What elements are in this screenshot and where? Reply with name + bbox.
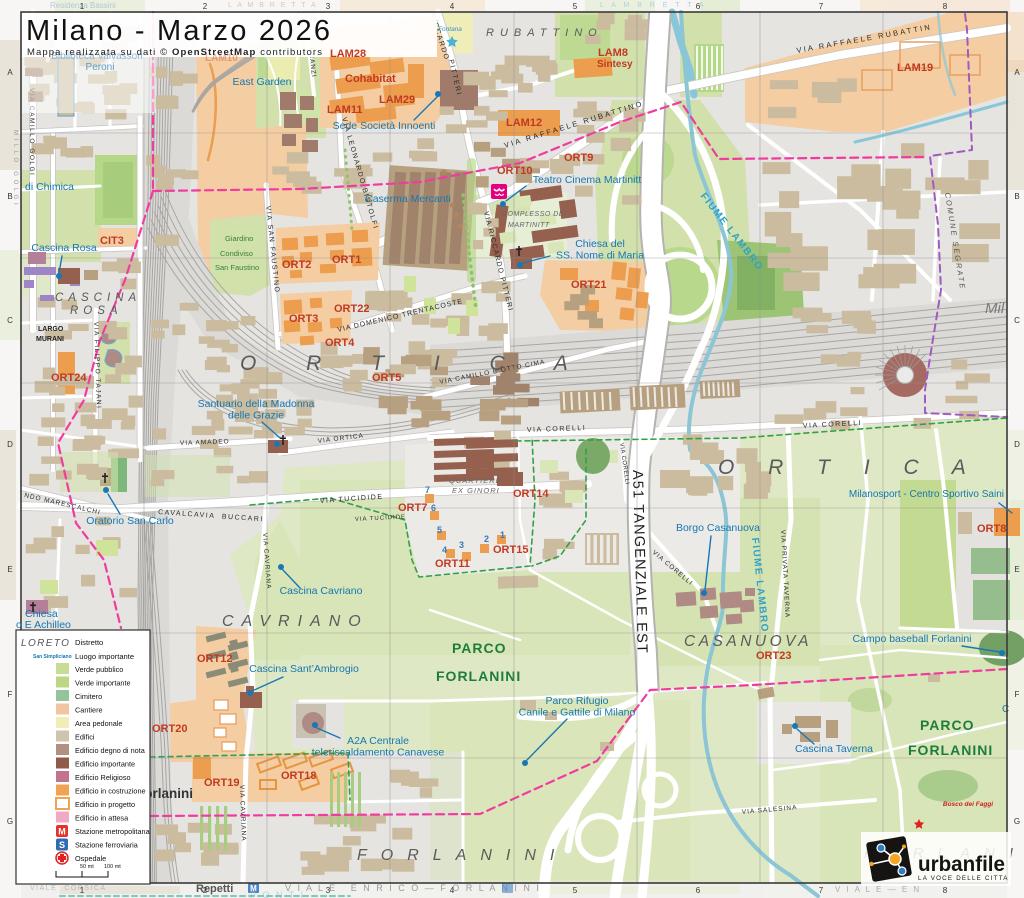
svg-text:Cascina Taverna: Cascina Taverna	[795, 743, 873, 755]
svg-text:2: 2	[203, 886, 208, 895]
svg-text:ORT19: ORT19	[204, 777, 239, 789]
svg-text:Verde pubblico: Verde pubblico	[75, 665, 123, 674]
svg-text:G: G	[7, 817, 13, 826]
svg-text:ROSA: ROSA	[70, 305, 123, 317]
svg-text:2: 2	[484, 534, 489, 544]
svg-text:ORT7: ORT7	[398, 502, 427, 514]
svg-text:Edificio degno di nota: Edificio degno di nota	[75, 746, 146, 755]
svg-text:ORT8: ORT8	[977, 523, 1006, 535]
svg-text:C: C	[7, 316, 13, 325]
svg-text:di Chimica: di Chimica	[25, 181, 74, 193]
svg-text:ORT5: ORT5	[372, 372, 401, 384]
svg-text:Fontana: Fontana	[438, 26, 462, 33]
svg-text:ORT3: ORT3	[289, 313, 318, 325]
svg-text:Milano - Marzo 2026: Milano - Marzo 2026	[26, 15, 332, 47]
svg-text:6: 6	[431, 503, 436, 513]
svg-text:MURANI: MURANI	[36, 336, 64, 343]
svg-text:6: 6	[696, 886, 701, 895]
svg-text:VIALE CORSICA: VIALE CORSICA	[30, 885, 107, 892]
svg-text:San Simpliciano: San Simpliciano	[33, 654, 72, 660]
svg-text:Verde importante: Verde importante	[75, 679, 131, 688]
svg-text:5: 5	[437, 525, 442, 535]
svg-text:Mappa realizzata su dati © Ope: Mappa realizzata su dati © OpenStreetMap…	[27, 47, 323, 58]
svg-text:3: 3	[459, 540, 464, 550]
svg-text:100 mt: 100 mt	[104, 864, 121, 870]
svg-text:A: A	[7, 68, 13, 77]
svg-text:ORT22: ORT22	[334, 303, 369, 315]
svg-text:o E Achilleo: o E Achilleo	[16, 619, 71, 631]
svg-text:D: D	[7, 440, 13, 449]
svg-text:Chiesa del: Chiesa del	[575, 238, 625, 250]
svg-text:Stazione ferroviaria: Stazione ferroviaria	[75, 841, 139, 850]
svg-text:G: G	[1014, 817, 1020, 826]
svg-text:delle Grazie: delle Grazie	[228, 410, 284, 422]
svg-text:ORT15: ORT15	[493, 544, 528, 556]
svg-text:Teatro Cinema Martinitt: Teatro Cinema Martinitt	[533, 174, 642, 186]
svg-text:2: 2	[203, 2, 208, 11]
svg-text:ORT10: ORT10	[497, 165, 532, 177]
svg-text:ORT24: ORT24	[51, 372, 87, 384]
svg-text:ORT18: ORT18	[281, 770, 316, 782]
svg-text:FORLANINI: FORLANINI	[357, 847, 568, 864]
svg-text:Cascina Rosa: Cascina Rosa	[31, 242, 97, 254]
svg-text:50 mt: 50 mt	[80, 864, 94, 870]
svg-text:Cascina Sant’Ambrogio: Cascina Sant’Ambrogio	[249, 663, 359, 675]
svg-text:B: B	[1014, 192, 1019, 201]
svg-text:Edificio in attesa: Edificio in attesa	[75, 814, 129, 823]
svg-text:CIT3: CIT3	[100, 235, 124, 247]
svg-text:Giardino: Giardino	[225, 234, 253, 243]
svg-text:Mil: Mil	[985, 300, 1005, 317]
svg-text:Area pedonale: Area pedonale	[75, 719, 122, 728]
svg-text:ORT20: ORT20	[152, 723, 187, 735]
svg-text:LA VOCE DELLE CITTA: LA VOCE DELLE CITTA	[918, 875, 1009, 882]
svg-text:ORT23: ORT23	[756, 650, 791, 662]
svg-text:F: F	[1015, 690, 1020, 699]
svg-text:L A M B R E T T A: L A M B R E T T A	[600, 2, 707, 9]
svg-text:teleriscaldamento Canavese: teleriscaldamento Canavese	[312, 747, 445, 759]
svg-text:Distretto: Distretto	[75, 638, 103, 647]
svg-text:EX GINORI: EX GINORI	[452, 486, 500, 495]
svg-text:LAM29: LAM29	[379, 94, 415, 106]
svg-text:E: E	[1014, 565, 1019, 574]
svg-text:Luogo importante: Luogo importante	[75, 652, 134, 661]
svg-text:East Garden: East Garden	[233, 76, 292, 88]
svg-text:FORLANINI: FORLANINI	[908, 742, 993, 758]
svg-text:E: E	[7, 565, 12, 574]
svg-text:FORLANINI: FORLANINI	[436, 668, 521, 684]
svg-text:LAM8: LAM8	[598, 47, 628, 59]
svg-text:3: 3	[326, 2, 331, 11]
svg-text:A2A Centrale: A2A Centrale	[347, 735, 409, 747]
svg-text:L A M B R E T T A: L A M B R E T T A	[228, 2, 318, 9]
svg-text:6: 6	[696, 2, 701, 11]
svg-text:LORETO: LORETO	[21, 638, 70, 649]
svg-text:San Faustino: San Faustino	[215, 263, 259, 272]
svg-text:ORT14: ORT14	[513, 488, 549, 500]
svg-text:PARCO: PARCO	[920, 717, 975, 733]
svg-text:1: 1	[500, 530, 505, 540]
svg-text:S: S	[59, 840, 65, 850]
svg-text:Cascina Cavriano: Cascina Cavriano	[280, 585, 363, 597]
svg-text:Caserma Mercanti: Caserma Mercanti	[365, 193, 451, 205]
svg-text:7: 7	[819, 2, 824, 11]
svg-text:O R T I C A: O R T I C A	[718, 456, 980, 479]
svg-text:C: C	[1014, 316, 1020, 325]
svg-text:ORT1: ORT1	[332, 254, 361, 266]
svg-text:ORT21: ORT21	[571, 279, 606, 291]
svg-text:CASCINA: CASCINA	[55, 292, 141, 304]
svg-text:ORT4: ORT4	[325, 337, 355, 349]
svg-text:7: 7	[819, 886, 824, 895]
svg-text:3: 3	[326, 886, 331, 895]
svg-text:Borgo Casanuova: Borgo Casanuova	[676, 522, 760, 534]
svg-text:Milanosport - Centro Sportivo: Milanosport - Centro Sportivo Saini	[849, 489, 1004, 500]
svg-text:LAM28: LAM28	[330, 48, 366, 60]
svg-text:Parco Rifugio: Parco Rifugio	[545, 695, 608, 707]
svg-text:4: 4	[450, 886, 455, 895]
svg-text:7: 7	[425, 485, 430, 495]
svg-text:8: 8	[943, 2, 948, 11]
svg-text:COMPLESSO DEI: COMPLESSO DEI	[502, 211, 566, 218]
svg-text:M: M	[58, 827, 66, 837]
svg-text:Campo baseball Forlanini: Campo baseball Forlanini	[852, 633, 971, 645]
svg-text:Canile e Gattile di Milano: Canile e Gattile di Milano	[519, 707, 636, 719]
svg-text:ORT12: ORT12	[197, 653, 232, 665]
svg-text:urbanfile: urbanfile	[918, 853, 1005, 876]
svg-text:Edificio in progetto: Edificio in progetto	[75, 800, 135, 809]
svg-text:LAM11: LAM11	[327, 104, 362, 116]
svg-text:Peroni: Peroni	[86, 62, 115, 73]
svg-text:Stazione metropolitana: Stazione metropolitana	[75, 827, 151, 836]
svg-text:Condiviso: Condiviso	[220, 249, 253, 258]
svg-text:Bosco dei Faggi: Bosco dei Faggi	[943, 801, 993, 808]
svg-text:LARGO: LARGO	[38, 326, 64, 333]
svg-text:1: 1	[80, 2, 85, 11]
svg-text:M I L L O G O L G I: M I L L O G O L G I	[12, 130, 18, 206]
svg-text:Santuario della Madonna: Santuario della Madonna	[198, 398, 315, 410]
svg-text:SS. Nome di Maria: SS. Nome di Maria	[556, 250, 644, 262]
svg-text:4: 4	[450, 2, 455, 11]
svg-text:1: 1	[80, 886, 85, 895]
svg-text:Edificio in costruzione: Edificio in costruzione	[75, 787, 146, 796]
svg-text:LAM19: LAM19	[897, 62, 933, 74]
svg-text:5: 5	[573, 2, 578, 11]
svg-text:D: D	[1014, 440, 1020, 449]
svg-text:Cohabitat: Cohabitat	[345, 73, 396, 85]
svg-text:Edificio importante: Edificio importante	[75, 760, 135, 769]
svg-text:4: 4	[442, 545, 447, 555]
svg-text:Repetti: Repetti	[196, 883, 233, 895]
svg-text:Sintesy: Sintesy	[597, 59, 633, 70]
svg-text:LAM12: LAM12	[506, 117, 542, 129]
svg-text:5: 5	[573, 886, 578, 895]
svg-text:8: 8	[943, 886, 948, 895]
svg-text:ORT11: ORT11	[435, 558, 470, 570]
svg-text:V I A L E — E N: V I A L E — E N	[835, 885, 921, 894]
svg-text:RUBATTINO: RUBATTINO	[486, 27, 603, 39]
svg-text:Cimitero: Cimitero	[75, 692, 102, 701]
svg-text:C: C	[1002, 704, 1009, 715]
svg-text:Sede Società Innoenti: Sede Società Innoenti	[333, 120, 436, 132]
svg-text:PARCO: PARCO	[452, 640, 507, 656]
svg-text:Edificio Religioso: Edificio Religioso	[75, 773, 131, 782]
svg-text:QUARTIERE: QUARTIERE	[449, 476, 502, 485]
svg-text:B: B	[7, 192, 12, 201]
svg-text:ORT2: ORT2	[282, 259, 311, 271]
svg-text:CASANUOVA: CASANUOVA	[684, 633, 812, 650]
svg-text:F: F	[8, 690, 13, 699]
svg-text:Ospedale: Ospedale	[75, 854, 106, 863]
svg-text:A: A	[1014, 68, 1020, 77]
svg-text:Oratorio San Carlo: Oratorio San Carlo	[86, 515, 174, 527]
svg-text:Edifici: Edifici	[75, 733, 95, 742]
svg-text:O R T I C A: O R T I C A	[240, 352, 590, 375]
svg-text:CAVRIANO: CAVRIANO	[222, 613, 369, 630]
svg-text:Cantiere: Cantiere	[75, 706, 103, 715]
svg-text:ORT9: ORT9	[564, 152, 593, 164]
